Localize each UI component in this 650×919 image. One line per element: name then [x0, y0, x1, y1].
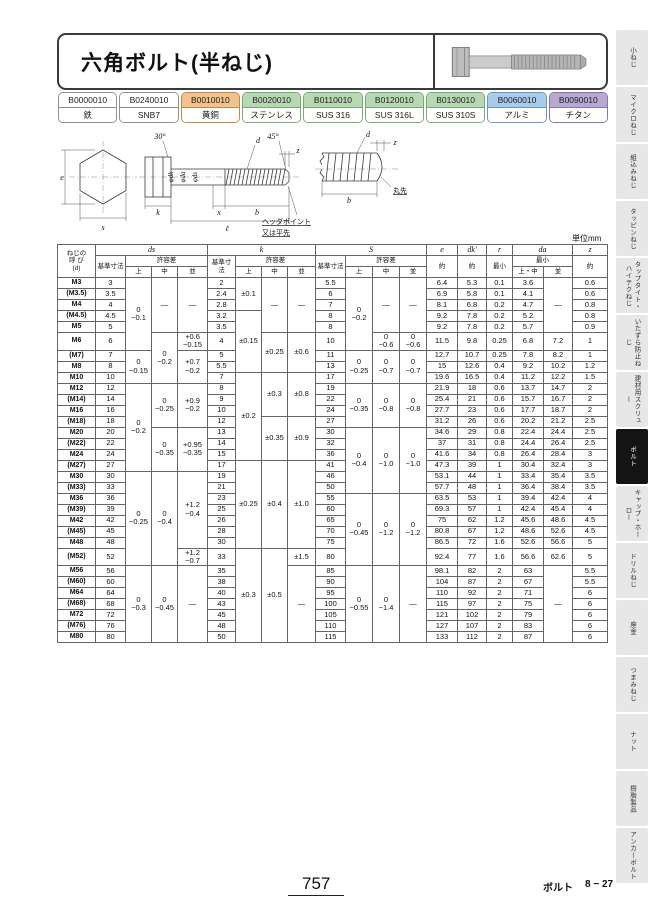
dim-cell: 0.8 — [573, 300, 608, 311]
dim-cell: 15.7 — [513, 394, 544, 405]
dim-cell: 25 — [208, 504, 236, 515]
dim-cell: 0 −0.55 — [346, 566, 373, 643]
dim-cell: 71 — [513, 588, 544, 599]
size-designation: M80 — [58, 632, 96, 643]
size-designation: M48 — [58, 537, 96, 548]
dim-cell: 16 — [96, 405, 126, 416]
dim-cell: 8.2 — [544, 350, 573, 361]
da-sub-col: 上・中 — [513, 267, 544, 278]
dim-label-b: b — [255, 208, 259, 217]
dim-cell: 10 — [316, 333, 346, 351]
dim-cell: 55 — [316, 493, 346, 504]
product-code-chip: B0110010SUS 316 — [303, 92, 362, 123]
dim-label-z: z — [295, 146, 300, 155]
col-header-approx: 約 — [458, 256, 487, 278]
dim-cell: 21.9 — [427, 383, 458, 394]
dim-cell: 3.2 — [208, 311, 236, 322]
dim-cell: 0.4 — [487, 372, 513, 383]
size-designation: M12 — [58, 383, 96, 394]
product-code: B0090010 — [550, 93, 607, 108]
dim-label-k: k — [156, 208, 160, 217]
dim-cell: 90 — [316, 577, 346, 588]
dim-cell: 2 — [487, 577, 513, 588]
size-designation: M20 — [58, 427, 96, 438]
dim-cell: 18.7 — [544, 405, 573, 416]
dim-cell: 42.4 — [513, 504, 544, 515]
dim-cell: 36 — [96, 493, 126, 504]
dim-cell: 41 — [316, 460, 346, 471]
size-designation: M8 — [58, 361, 96, 372]
dim-cell: 115 — [427, 599, 458, 610]
dim-cell: 1.5 — [573, 372, 608, 383]
sidebar-tab[interactable]: 樹脂製品 — [616, 771, 648, 826]
dim-cell: 0.6 — [487, 416, 513, 427]
dim-cell: ±0.1 — [236, 278, 262, 311]
dim-cell: 75 — [316, 537, 346, 548]
dim-cell: 0 −0.3 — [126, 566, 152, 643]
dim-cell: 24 — [96, 449, 126, 460]
dim-cell: 26.4 — [544, 438, 573, 449]
dim-cell: 30 — [208, 537, 236, 548]
dim-cell: 9.8 — [458, 333, 487, 351]
dim-cell: 0 −0.2 — [346, 278, 373, 351]
dim-cell: 4.1 — [513, 289, 544, 300]
dim-cell: 22 — [96, 438, 126, 449]
dim-cell: 2 — [487, 566, 513, 577]
product-code: B0020010 — [243, 93, 300, 108]
dim-cell: 48 — [96, 537, 126, 548]
dim-cell: 26.4 — [513, 449, 544, 460]
dim-cell: 64 — [96, 588, 126, 599]
dim-cell: 8 — [208, 383, 236, 394]
size-designation: (M68) — [58, 599, 96, 610]
size-designation: M72 — [58, 610, 96, 621]
dim-cell: 2 — [487, 610, 513, 621]
dim-cell: 0 −0.1 — [126, 278, 152, 351]
dim-cell: 0.8 — [487, 427, 513, 438]
dim-cell: 45 — [208, 610, 236, 621]
dim-cell: 56.6 — [513, 548, 544, 566]
dim-cell: 17.7 — [513, 405, 544, 416]
size-designation: (M76) — [58, 621, 96, 632]
sidebar-tab[interactable]: 建材用スクリュー — [616, 372, 648, 427]
dim-cell: 26 — [208, 515, 236, 526]
col-header-e: e — [427, 245, 458, 256]
material-label: 黄銅 — [182, 108, 239, 122]
size-designation: (M60) — [58, 577, 96, 588]
dim-cell: 13 — [316, 361, 346, 372]
dim-cell: 48 — [208, 621, 236, 632]
product-code: B0000010 — [59, 93, 116, 108]
dim-cell: — — [152, 278, 178, 333]
dim-cell: 12.2 — [544, 372, 573, 383]
col-header-tol: 許容差 — [126, 256, 208, 267]
dim-cell: 92 — [458, 588, 487, 599]
dim-cell: 30.4 — [513, 460, 544, 471]
col-header-approx: 約 — [427, 256, 458, 278]
dim-cell: 14 — [96, 394, 126, 405]
dim-cell: 2 — [487, 621, 513, 632]
product-code: B0110010 — [304, 93, 361, 108]
dim-cell: 48.6 — [544, 515, 573, 526]
dim-cell: 6.8 — [458, 300, 487, 311]
footer-section: ボルト 8 − 27 — [543, 879, 613, 894]
dim-cell: 4.7 — [513, 300, 544, 311]
dim-cell: 3.6 — [513, 278, 544, 289]
dim-label-ds: φds — [191, 172, 199, 182]
technical-drawing: e s 30° φdk φda φds d 45° z k x b ℓ ヘッダポ… — [57, 130, 612, 240]
dim-cell: 18 — [458, 383, 487, 394]
size-designation: M42 — [58, 515, 96, 526]
dim-cell: 0 −0.25 — [152, 383, 178, 427]
material-label: ステンレス — [243, 108, 300, 122]
sidebar-tab[interactable]: 組込みねじ — [616, 144, 648, 199]
dim-cell: 33 — [208, 548, 236, 566]
product-photo-area — [435, 35, 606, 88]
product-code: B0060010 — [488, 93, 545, 108]
dim-cell: 0 −1.2 — [400, 493, 427, 566]
dim-cell: 20.2 — [513, 416, 544, 427]
dim-cell: 6 — [573, 632, 608, 643]
sidebar: 小ねじマイクロねじ組込みねじタッピンねじタップタイト・ハイテクねじいたずら防止ね… — [616, 30, 648, 883]
dim-cell: 28 — [208, 526, 236, 537]
dim-cell: 98.1 — [427, 566, 458, 577]
dim-cell: 63 — [513, 566, 544, 577]
dim-cell: 77 — [458, 548, 487, 566]
dim-label-30deg: 30° — [153, 132, 166, 141]
dim-cell: 0.4 — [487, 361, 513, 372]
dim-cell: 22 — [316, 394, 346, 405]
dim-cell: 31.2 — [427, 416, 458, 427]
dim-cell: 5 — [573, 537, 608, 548]
dim-cell: 107 — [458, 621, 487, 632]
sidebar-tab[interactable]: 小ねじ — [616, 30, 648, 85]
dim-cell: 0 −0.4 — [346, 427, 373, 493]
dim-cell: 65 — [316, 515, 346, 526]
dim-cell: 42 — [96, 515, 126, 526]
dim-cell: 8 — [96, 361, 126, 372]
sidebar-tab[interactable]: タッピンねじ — [616, 201, 648, 256]
size-designation: M4 — [58, 300, 96, 311]
dim-cell: 22.4 — [513, 427, 544, 438]
dim-cell: 5 — [208, 350, 236, 361]
dim-cell: 39.4 — [513, 493, 544, 504]
dim-cell: 13 — [208, 427, 236, 438]
dim-cell: 1 — [487, 482, 513, 493]
dim-cell: 6 — [573, 621, 608, 632]
size-designation: (M52) — [58, 548, 96, 566]
dim-cell: 25.4 — [427, 394, 458, 405]
dim-cell: 2 — [573, 405, 608, 416]
dim-cell: ±0.8 — [288, 372, 316, 416]
dim-cell: 2 — [208, 278, 236, 289]
dim-cell: 21 — [208, 482, 236, 493]
dim-cell: — — [373, 278, 400, 333]
dim-cell: 15 — [427, 361, 458, 372]
dim-cell: 80.8 — [427, 526, 458, 537]
dim-cell: 80 — [316, 548, 346, 566]
size-designation: M36 — [58, 493, 96, 504]
dim-cell: 4.5 — [573, 526, 608, 537]
dim-cell: 14 — [208, 438, 236, 449]
dim-cell: 10 — [96, 372, 126, 383]
dim-cell: 7.2 — [544, 333, 573, 351]
dim-cell: 0.25 — [487, 350, 513, 361]
dim-cell: 57 — [458, 504, 487, 515]
dim-cell: 110 — [316, 621, 346, 632]
col-header-base: 基準寸法 — [316, 256, 346, 278]
dim-cell: 7.8 — [458, 322, 487, 333]
page-title: 六角ボルト(半ねじ) — [81, 47, 273, 77]
dim-cell: 2 — [487, 599, 513, 610]
dim-cell: 56 — [96, 566, 126, 577]
dim-cell: 12 — [96, 383, 126, 394]
size-designation: M3 — [58, 278, 96, 289]
material-label: SNB7 — [120, 108, 177, 122]
dim-cell: 133 — [427, 632, 458, 643]
dim-cell: 46 — [316, 471, 346, 482]
dim-cell: ±1.0 — [288, 460, 316, 548]
sidebar-tab[interactable]: ボルト — [616, 429, 648, 484]
sidebar-tab[interactable]: ナット — [616, 714, 648, 769]
dim-cell: 27 — [316, 416, 346, 427]
dim-cell: 45.4 — [544, 504, 573, 515]
dim-cell: 85 — [316, 566, 346, 577]
dim-cell: 2.4 — [208, 289, 236, 300]
dim-cell: 2 — [487, 588, 513, 599]
material-label: アルミ — [488, 108, 545, 122]
dim-cell: 2.5 — [573, 438, 608, 449]
dim-cell: 1.6 — [487, 537, 513, 548]
sidebar-tab[interactable]: つまみねじ — [616, 657, 648, 712]
dim-cell: 23 — [458, 405, 487, 416]
col-header-ds: ds — [96, 245, 208, 256]
size-designation: M6 — [58, 333, 96, 351]
col-header-base: 基準寸法 — [96, 256, 126, 278]
col-header-tol: 許容差 — [346, 256, 427, 267]
dim-cell: 24.4 — [544, 427, 573, 438]
dim-cell: 0 −0.7 — [373, 350, 400, 383]
dim-cell: — — [544, 278, 573, 333]
dim-cell: 7.8 — [513, 350, 544, 361]
dim-cell: ±0.3 — [236, 548, 262, 643]
dim-cell: 0.8 — [573, 311, 608, 322]
dim-cell: 6 — [573, 599, 608, 610]
dim-cell: 45.6 — [513, 515, 544, 526]
dim-label-x: x — [216, 208, 221, 217]
dim-cell: 2 — [487, 632, 513, 643]
dim-cell: 50 — [316, 482, 346, 493]
dim-cell: 35 — [208, 566, 236, 577]
dim-cell: 0 −0.45 — [346, 493, 373, 566]
col-header-tol: 許容差 — [236, 256, 316, 267]
dim-cell: ±0.2 — [236, 372, 262, 460]
dim-cell: 76 — [96, 621, 126, 632]
dim-label-z2: z — [392, 138, 397, 147]
dim-cell: +0.95 −0.35 — [178, 427, 208, 471]
dim-cell: — — [178, 566, 208, 643]
size-designation: (M45) — [58, 526, 96, 537]
material-label: SUS 310S — [427, 108, 484, 122]
dim-cell: 79 — [513, 610, 544, 621]
dim-cell: 11 — [316, 350, 346, 361]
footer-section-label: ボルト — [543, 879, 573, 894]
dim-cell: 30 — [96, 471, 126, 482]
dim-cell: 35.4 — [544, 471, 573, 482]
size-designation: M30 — [58, 471, 96, 482]
dim-cell: 0.6 — [487, 405, 513, 416]
dim-cell: 5.8 — [458, 289, 487, 300]
dim-cell: 0 −0.6 — [400, 333, 427, 351]
sidebar-tab[interactable]: 座金 — [616, 600, 648, 655]
dim-cell: 33 — [96, 482, 126, 493]
size-designation: M16 — [58, 405, 96, 416]
material-label: チタン — [550, 108, 607, 122]
da-sub-col: 並 — [544, 267, 573, 278]
sidebar-tab[interactable]: タップタイト・ハイテクねじ — [616, 258, 648, 313]
dim-cell: — — [262, 278, 288, 333]
sidebar-tab[interactable]: ドリルねじ — [616, 543, 648, 598]
dim-label-s: s — [101, 223, 104, 232]
dim-cell: +1.2 −0.7 — [178, 548, 208, 566]
dim-cell: 0 −0.15 — [126, 350, 152, 383]
dim-cell: ±0.5 — [262, 548, 288, 643]
size-designation: M56 — [58, 566, 96, 577]
dim-cell: +0.9 −0.2 — [178, 383, 208, 427]
dim-cell: 53 — [458, 493, 487, 504]
dim-cell: 83 — [513, 621, 544, 632]
dim-cell: 60 — [316, 504, 346, 515]
dim-cell: 0.2 — [487, 311, 513, 322]
dim-cell: 3 — [96, 278, 126, 289]
dim-cell: 16.7 — [544, 394, 573, 405]
col-header-z: z — [573, 245, 608, 256]
size-designation: M10 — [58, 372, 96, 383]
footer-page-number: 757 — [288, 874, 344, 896]
dim-cell: 6 — [96, 333, 126, 351]
product-code-chip: B0120010SUS 316L — [365, 92, 424, 123]
dim-cell: 0 −0.8 — [400, 383, 427, 427]
dim-cell: 1 — [487, 493, 513, 504]
grade-col: 中 — [152, 267, 178, 278]
sidebar-tab[interactable]: アンカーボルト — [616, 828, 648, 883]
dim-cell: 86.5 — [427, 537, 458, 548]
dim-cell: 72 — [458, 537, 487, 548]
product-code-chip: B0020010ステンレス — [242, 92, 301, 123]
dim-cell: +0.7 −0.2 — [178, 350, 208, 383]
dim-cell: 11.2 — [513, 372, 544, 383]
dim-cell: 0 −0.25 — [346, 350, 373, 383]
dim-cell: 62 — [458, 515, 487, 526]
dim-cell: 0.2 — [487, 300, 513, 311]
dim-cell: 57.7 — [427, 482, 458, 493]
dim-cell: 2.8 — [208, 300, 236, 311]
dim-cell: 44 — [458, 471, 487, 482]
dim-cell: 45 — [96, 526, 126, 537]
dim-cell: 0.9 — [573, 322, 608, 333]
dim-cell: 97 — [458, 599, 487, 610]
sidebar-tab[interactable]: キャップ・ホーロー — [616, 486, 648, 541]
dim-cell: 5.5 — [208, 361, 236, 372]
product-code-chip: B0010010黄銅 — [181, 92, 240, 123]
col-header-s: S — [316, 245, 427, 256]
col-header-min: 最小 — [513, 256, 573, 267]
dim-cell: 4 — [208, 333, 236, 351]
dim-cell: — — [400, 566, 427, 643]
dim-cell: 19 — [208, 471, 236, 482]
dim-cell: 7 — [208, 372, 236, 383]
dim-cell: 5.5 — [316, 278, 346, 289]
dim-cell: 23 — [208, 493, 236, 504]
dim-cell: ±0.35 — [262, 416, 288, 460]
dim-cell: 19 — [316, 383, 346, 394]
dim-cell: 72 — [96, 610, 126, 621]
dim-cell: ±0.15 — [236, 311, 262, 373]
dim-label-dk: φdk — [167, 171, 175, 182]
dim-cell: 12.7 — [427, 350, 458, 361]
unit-label: 単位mm — [572, 233, 601, 244]
grade-col: 中 — [373, 267, 400, 278]
dim-cell: 5 — [96, 322, 126, 333]
dim-cell: 5.2 — [513, 311, 544, 322]
sidebar-tab[interactable]: マイクロねじ — [616, 87, 648, 142]
grade-col: 上 — [346, 267, 373, 278]
size-designation: (M4.5) — [58, 311, 96, 322]
dim-cell: 5.3 — [458, 278, 487, 289]
dim-cell: 3.5 — [208, 322, 236, 333]
dim-cell: 0.1 — [487, 289, 513, 300]
dim-cell: 41.6 — [427, 449, 458, 460]
dim-cell: 3.5 — [573, 482, 608, 493]
dim-cell: — — [288, 278, 316, 333]
col-header-designation: ねじの 呼 び (d) — [58, 245, 96, 278]
dim-cell: 9.2 — [427, 322, 458, 333]
dim-cell: 4 — [573, 504, 608, 515]
dim-cell: 2 — [573, 394, 608, 405]
size-designation: (M39) — [58, 504, 96, 515]
dim-cell: 17 — [208, 460, 236, 471]
product-code-chip: B0000010鉄 — [58, 92, 117, 123]
dim-cell: 1 — [487, 460, 513, 471]
dim-cell: 110 — [427, 588, 458, 599]
dim-cell: 87 — [513, 632, 544, 643]
dim-cell: ±0.3 — [262, 372, 288, 416]
dim-cell: 3.5 — [573, 471, 608, 482]
dim-cell: 9 — [208, 394, 236, 405]
dim-cell: 4.5 — [573, 515, 608, 526]
size-designation: M64 — [58, 588, 96, 599]
dim-cell: — — [178, 278, 208, 333]
dim-cell: 0.8 — [487, 438, 513, 449]
dim-cell: 39 — [458, 460, 487, 471]
dim-cell: 10 — [208, 405, 236, 416]
dim-cell: 0.6 — [573, 278, 608, 289]
dim-cell: 40 — [208, 588, 236, 599]
dim-cell: 1.2 — [573, 361, 608, 372]
dim-cell: 0 −0.8 — [373, 383, 400, 427]
dim-cell: 9.2 — [427, 311, 458, 322]
dim-cell: — — [288, 566, 316, 643]
dim-cell: 8 — [316, 322, 346, 333]
dim-cell: 24.4 — [513, 438, 544, 449]
dim-cell: 16.5 — [458, 372, 487, 383]
dim-cell: 69.3 — [427, 504, 458, 515]
dim-cell: 4 — [96, 300, 126, 311]
dim-cell: 0.2 — [487, 322, 513, 333]
dim-cell: ±0.6 — [288, 333, 316, 373]
sidebar-tab[interactable]: いたずら防止ねじ — [616, 315, 648, 370]
dim-cell: 67 — [458, 526, 487, 537]
